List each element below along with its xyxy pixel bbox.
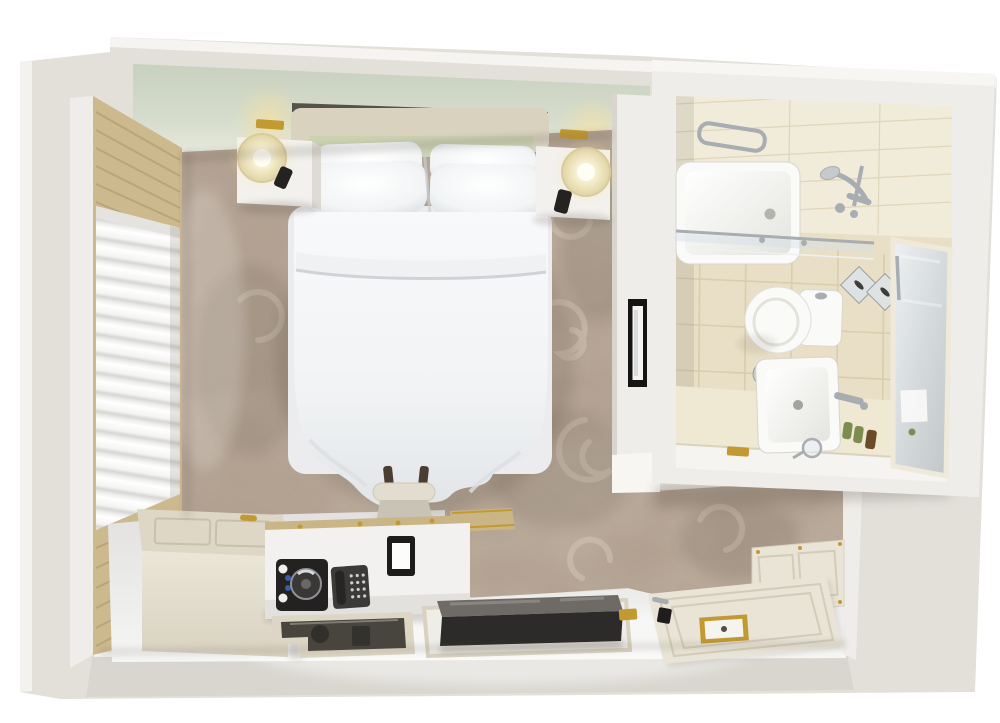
bathtub-drain xyxy=(765,209,776,220)
nightstand-left-shadow xyxy=(238,201,318,215)
bench-gold-handle xyxy=(240,514,257,521)
bathroom xyxy=(652,60,995,508)
floor-plan-render xyxy=(0,0,1000,723)
ao-window-edge xyxy=(182,152,192,518)
coffee-pod-2 xyxy=(285,585,291,591)
floor-plan-canvas xyxy=(0,0,1000,723)
kettle-lid xyxy=(301,579,311,589)
pillow-front-right xyxy=(430,163,544,217)
vessel-sink xyxy=(755,357,840,454)
window-roman-shade xyxy=(96,206,180,530)
rack-cushion xyxy=(373,483,435,501)
mirror-sink-reflection xyxy=(900,390,927,423)
wall-art-mirror xyxy=(628,299,647,387)
outer-wall-left-highlight xyxy=(20,61,32,692)
glass-bracket-2 xyxy=(801,240,807,246)
mirror-glass xyxy=(893,240,950,476)
towel-ring xyxy=(897,256,899,300)
door-plate xyxy=(699,614,749,643)
cosmetic-mirror xyxy=(803,439,821,457)
kettle-tray xyxy=(276,559,328,611)
mixer-valve-1 xyxy=(835,203,845,213)
bathroom-mirror xyxy=(893,240,950,476)
faucet-lever xyxy=(860,402,868,410)
lamp-right-bulb xyxy=(577,163,595,181)
pillow-front-left xyxy=(303,160,427,215)
cup-2 xyxy=(279,594,288,603)
shade-side-shadow xyxy=(170,226,180,498)
art-glass-streak xyxy=(634,310,638,376)
toilet-shadow xyxy=(737,334,777,354)
gold-soap-dish xyxy=(727,446,750,457)
mirror-bottle-reflection xyxy=(909,429,916,436)
gold-remote xyxy=(619,608,638,620)
flush-button xyxy=(815,293,827,300)
glass-bracket-1 xyxy=(759,237,765,243)
nightstand-right-shadow xyxy=(532,213,612,227)
cup-1 xyxy=(279,565,288,574)
info-tablet xyxy=(387,536,415,576)
right-wall-band xyxy=(612,94,655,492)
left-wall-inner-face xyxy=(70,96,93,668)
television-front xyxy=(440,611,623,646)
telephone xyxy=(331,565,371,609)
coffee-pod-1 xyxy=(285,575,291,581)
mixer-valve-2 xyxy=(850,210,858,218)
tablet-screen xyxy=(392,543,410,569)
keycard-lock xyxy=(657,607,672,624)
